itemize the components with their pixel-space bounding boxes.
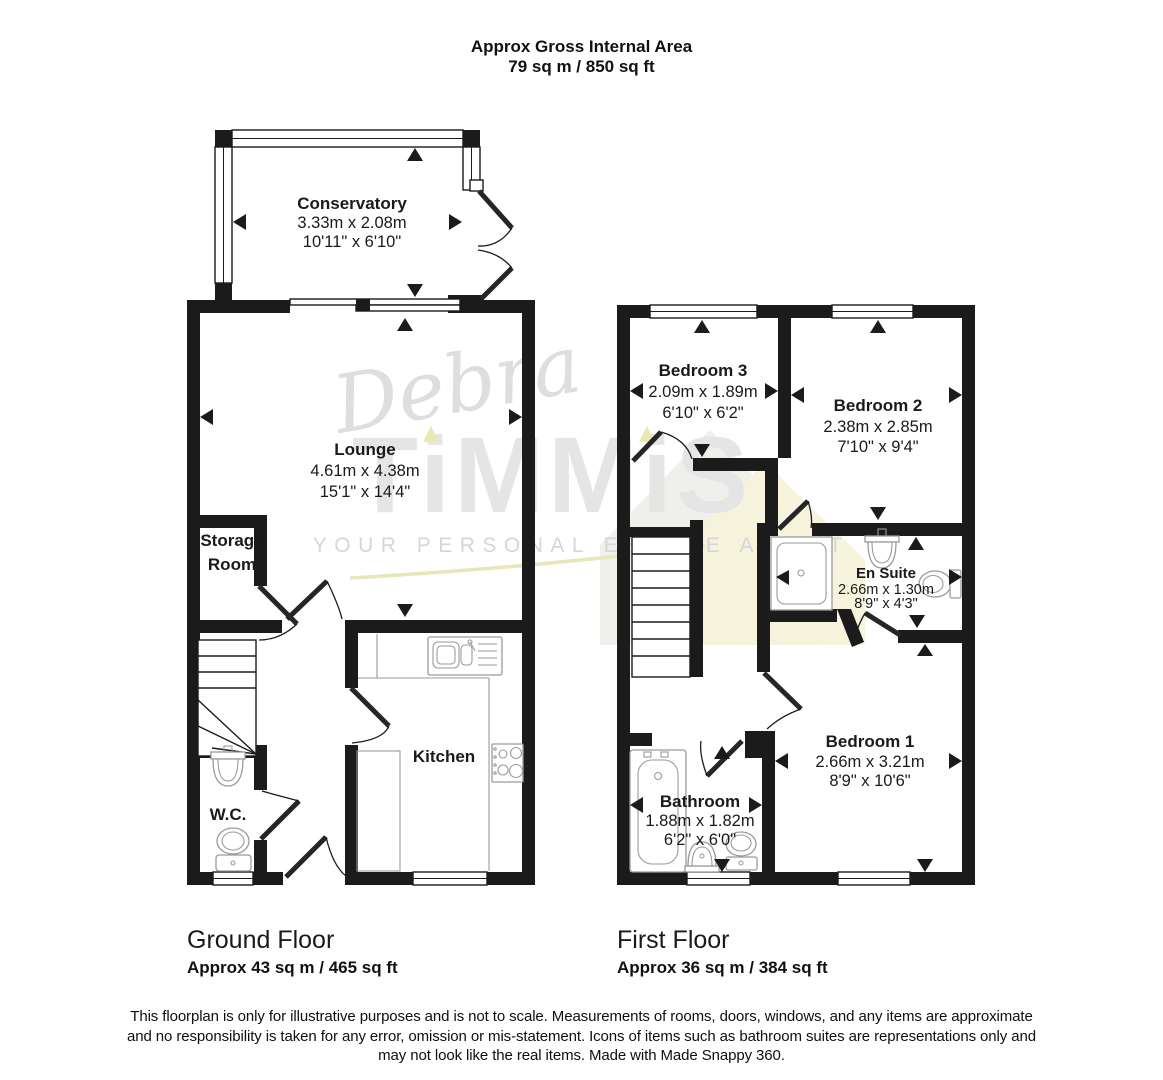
first-floor-caption: First Floor [617,926,730,955]
ground-floor-stairs [198,640,256,756]
conservatory-imperial: 10'11" x 6'10" [303,233,402,251]
first-floor-stairs [632,537,690,677]
ground-floor-area: Approx 43 sq m / 465 sq ft [187,958,398,978]
wc-toilet-icon [216,828,251,871]
lounge-name: Lounge [334,440,395,459]
conservatory-name: Conservatory [297,194,407,213]
bathroom-name: Bathroom [660,792,740,811]
bedroom1-imperial: 8'9" x 10'6" [829,772,910,790]
bedroom2-label: Bedroom 2 2.38m x 2.85m 7'10" x 9'4" [823,396,932,456]
floorplan-canvas: Debra TiMMiS YOUR PERSONAL ESTATE AGENT [0,0,1163,1080]
kitchen-label: Kitchen [413,747,475,766]
bedroom1-name: Bedroom 1 [826,732,915,751]
disclaimer-line1: This floorplan is only for illustrative … [0,1007,1163,1027]
disclaimer-line3: may not look like the real items. Made w… [0,1046,1163,1066]
wc-label: W.C. [210,805,247,824]
bathroom-imperial: 6'2" x 6'0" [664,831,736,849]
bathroom-metric: 1.88m x 1.82m [645,812,754,830]
lounge-imperial: 15'1" x 14'4" [320,483,411,501]
disclaimer: This floorplan is only for illustrative … [0,1007,1163,1066]
bedroom1-metric: 2.66m x 3.21m [815,753,924,771]
bedroom2-name: Bedroom 2 [834,396,923,415]
conservatory-metric: 3.33m x 2.08m [297,214,406,232]
storage-line2: Room [208,555,256,574]
storage-line1: Storage [200,531,263,550]
bedroom2-metric: 2.38m x 2.85m [823,418,932,436]
lounge-metric: 4.61m x 4.38m [310,462,419,480]
bedroom3-imperial: 6'10" x 6'2" [662,404,743,422]
first-floor-area: Approx 36 sq m / 384 sq ft [617,958,828,978]
disclaimer-line2: and no responsibility is taken for any e… [0,1027,1163,1047]
first-floor-plan: Bedroom 3 2.09m x 1.89m 6'10" x 6'2" Bed… [617,305,975,885]
patio-slider-door [290,299,460,311]
shower-icon [771,537,832,610]
french-doors [478,191,512,299]
bath-icon [630,750,686,872]
bedroom3-label: Bedroom 3 2.09m x 1.89m 6'10" x 6'2" [648,361,757,422]
ensuite-imperial: 8'9" x 4'3" [854,596,917,612]
ensuite-name: En Suite [856,565,916,582]
conservatory-label: Conservatory 3.33m x 2.08m 10'11" x 6'10… [297,194,407,251]
wc-sink-icon [211,746,245,786]
bedroom3-name: Bedroom 3 [659,361,748,380]
kitchen-sink-icon [428,637,502,675]
ground-floor-caption: Ground Floor [187,926,334,955]
hob-icon [492,744,523,782]
bedroom3-metric: 2.09m x 1.89m [648,383,757,401]
bedroom2-imperial: 7'10" x 9'4" [837,438,918,456]
floorplan-page: Approx Gross Internal Area 79 sq m / 850… [0,0,1163,1080]
bedroom1-label: Bedroom 1 2.66m x 3.21m 8'9" x 10'6" [815,732,924,790]
